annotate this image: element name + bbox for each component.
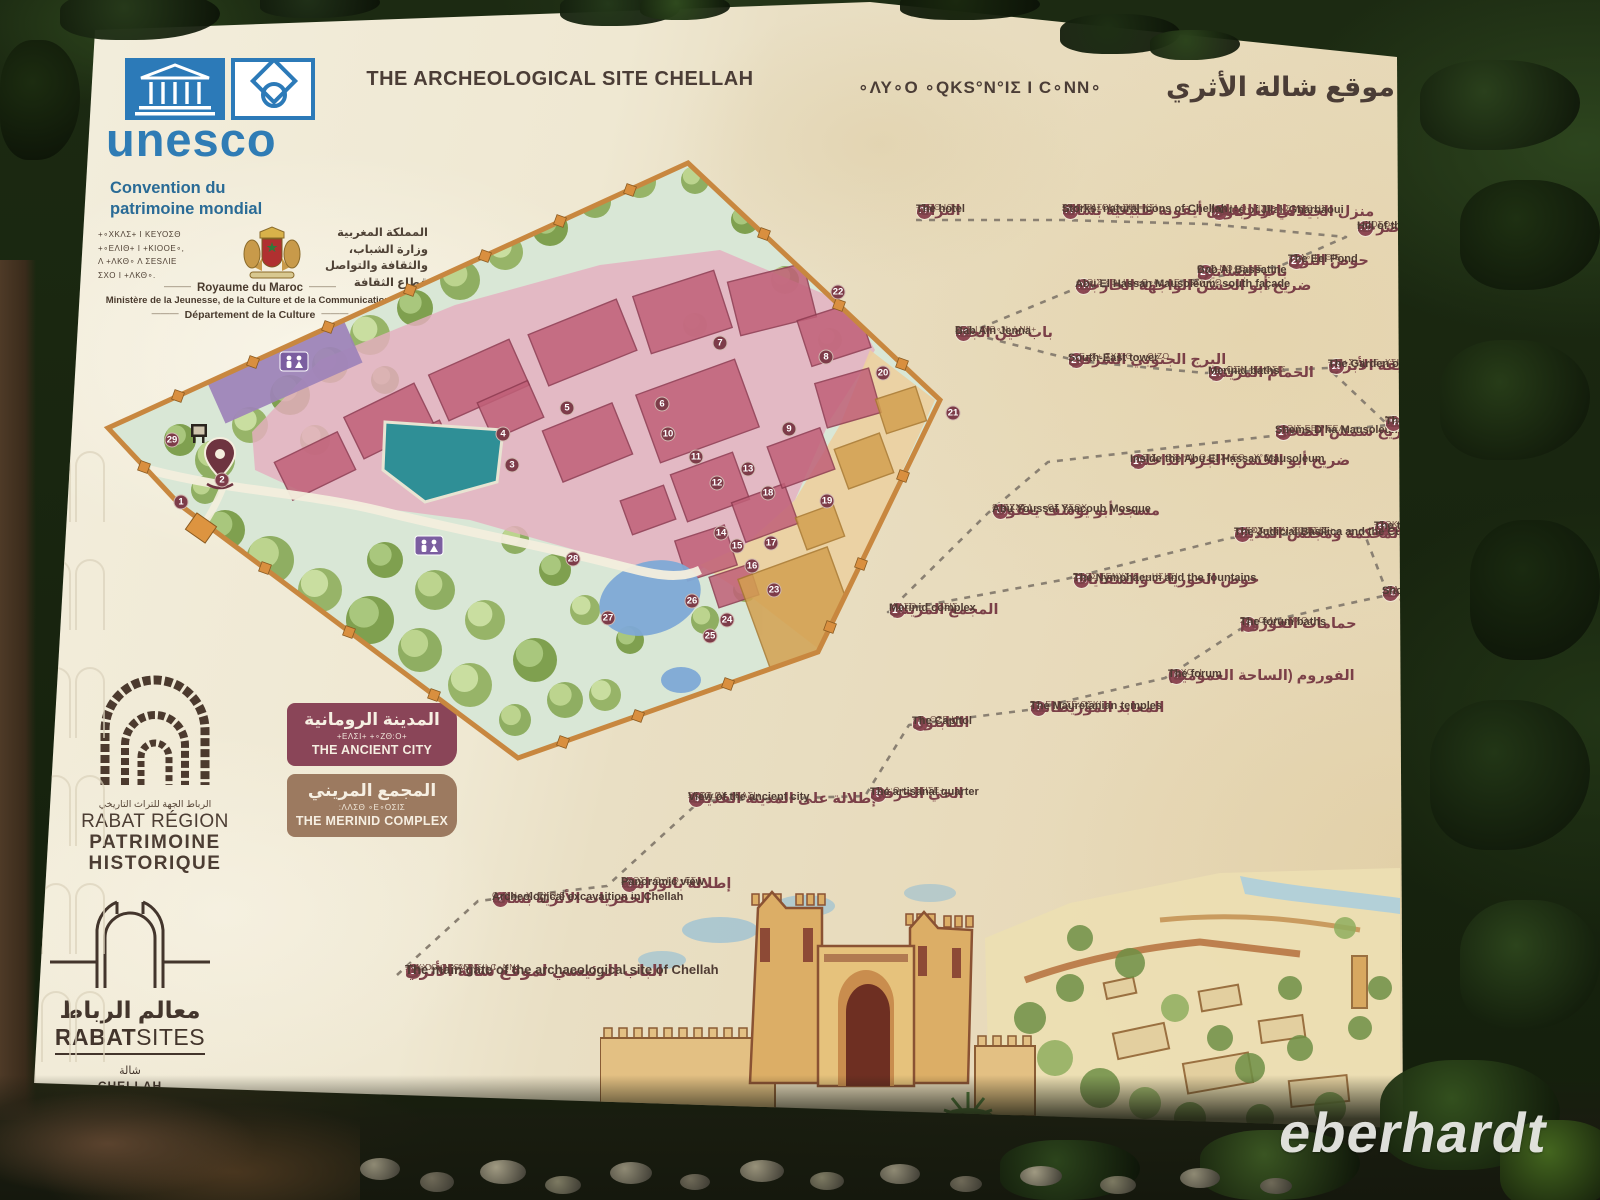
leaf xyxy=(1470,520,1600,660)
map-marker-10: 10 xyxy=(661,427,676,442)
site-name-english: Hill of the marabouts xyxy=(1357,220,1466,233)
soil-edge xyxy=(0,260,36,1120)
pebble xyxy=(1180,1168,1220,1188)
pebble xyxy=(420,1172,454,1192)
pebble xyxy=(360,1158,400,1180)
pebble xyxy=(1020,1166,1062,1186)
pebble xyxy=(480,1160,526,1184)
title-arabic: موقع شالة الأثري xyxy=(1150,72,1395,103)
map-marker-19: 19 xyxy=(820,494,835,509)
map-marker-24: 24 xyxy=(720,613,735,628)
site-name-english: Storks: natural icons of Chellah xyxy=(1062,203,1228,216)
site-map xyxy=(85,140,985,800)
site-name-english: The Garden of Towers xyxy=(1328,358,1443,371)
map-marker-8: 8 xyxy=(819,350,834,365)
map-marker-13: 13 xyxy=(741,462,756,477)
pebble xyxy=(680,1174,710,1190)
leaf xyxy=(260,0,380,18)
map-marker-20: 20 xyxy=(876,366,891,381)
pebble xyxy=(545,1176,581,1194)
map-marker-21: 21 xyxy=(946,406,961,421)
map-marker-25: 25 xyxy=(703,629,718,644)
site-name-english: South-East tower xyxy=(1068,352,1158,365)
site-name-english: Bab Al Bassatine xyxy=(1197,264,1286,277)
small-pond xyxy=(661,667,701,693)
map-marker-27: 27 xyxy=(601,611,616,626)
site-name-english: Inside the Abu El Hassan Mausoleum xyxy=(1130,453,1325,466)
map-marker-6: 6 xyxy=(655,397,670,412)
wc-icon xyxy=(415,536,443,555)
leaf xyxy=(1440,340,1590,460)
photographer-watermark: eberhardt xyxy=(1274,1100,1553,1165)
site-name-english: The Capitol xyxy=(912,715,972,728)
leaf xyxy=(900,0,1040,20)
site-name-english: The Nymphaeum and the fountains xyxy=(1073,572,1256,585)
map-marker-11: 11 xyxy=(689,450,704,465)
site-name-english: The hotel xyxy=(916,203,965,216)
leaf xyxy=(1420,60,1580,150)
site-name-english: The Eel Pond xyxy=(1288,253,1358,266)
site-name-english: Shems D'ha Mausoleum xyxy=(1275,424,1401,437)
leaf xyxy=(0,40,80,160)
pebble xyxy=(810,1172,844,1190)
map-marker-26: 26 xyxy=(685,594,700,609)
pebble xyxy=(950,1176,982,1192)
site-name-english: The forum baths xyxy=(1240,616,1326,629)
dirt-foreground xyxy=(0,1060,360,1200)
site-name-english: Abu Youssef Yaacoub Mosque xyxy=(992,503,1151,516)
map-marker-22: 22 xyxy=(831,285,846,300)
photo-of-sign: unesco Convention du patrimoine mondial … xyxy=(0,0,1600,1200)
map-marker-29: 29 xyxy=(165,433,180,448)
map-marker-2: 2 xyxy=(215,473,230,488)
site-name-english: Panoramic view xyxy=(621,876,704,889)
leaf xyxy=(1460,900,1600,1030)
leaf xyxy=(1430,700,1590,850)
map-marker-9: 9 xyxy=(782,422,797,437)
site-name-english: Archeological excavaition in Chellah xyxy=(492,891,683,904)
map-marker-18: 18 xyxy=(761,486,776,501)
site-name-english: The main gate of the archaeological site… xyxy=(405,963,719,978)
site-name-english: The forum xyxy=(1168,668,1222,681)
map-marker-1: 1 xyxy=(174,495,189,510)
site-name-english: The Judicial Basilica and the Curia xyxy=(1234,526,1416,539)
world-heritage-emblem xyxy=(231,58,315,120)
wc-icon xyxy=(280,352,308,371)
pebble xyxy=(1260,1178,1292,1194)
map-marker-3: 3 xyxy=(505,458,520,473)
site-name-english: Merinid complex xyxy=(889,602,976,615)
map-marker-16: 16 xyxy=(745,559,760,574)
map-marker-4: 4 xyxy=(496,427,511,442)
pebble xyxy=(610,1162,652,1184)
site-name-english: View of the ancient city xyxy=(688,791,809,804)
map-marker-15: 15 xyxy=(730,539,745,554)
map-marker-23: 23 xyxy=(767,583,782,598)
site-name-english: The Mauretanian temples xyxy=(1030,700,1162,713)
pebble xyxy=(740,1160,784,1182)
map-marker-5: 5 xyxy=(560,401,575,416)
sign-board: unesco Convention du patrimoine mondial … xyxy=(0,0,1600,1200)
title-tifinagh: ∘ΛΥ∘O ∘QΚS°Ν°ΙΣ Ι C∘ΝΝ∘ xyxy=(840,78,1120,98)
site-name-english: The artisanal quarter xyxy=(870,786,979,799)
title-english: THE ARCHEOLOGICAL SITE CHELLAH xyxy=(340,68,780,91)
map-marker-12: 12 xyxy=(710,476,725,491)
map-marker-7: 7 xyxy=(713,336,728,351)
pebble xyxy=(1100,1176,1136,1194)
unesco-temple-logo xyxy=(125,58,225,120)
map-marker-14: 14 xyxy=(714,526,729,541)
map-marker-28: 28 xyxy=(566,552,581,567)
map-marker-17: 17 xyxy=(764,536,779,551)
pebble xyxy=(880,1164,920,1184)
site-name-english: Bab Ain Jenna xyxy=(955,325,1031,338)
leaf xyxy=(1460,180,1600,290)
